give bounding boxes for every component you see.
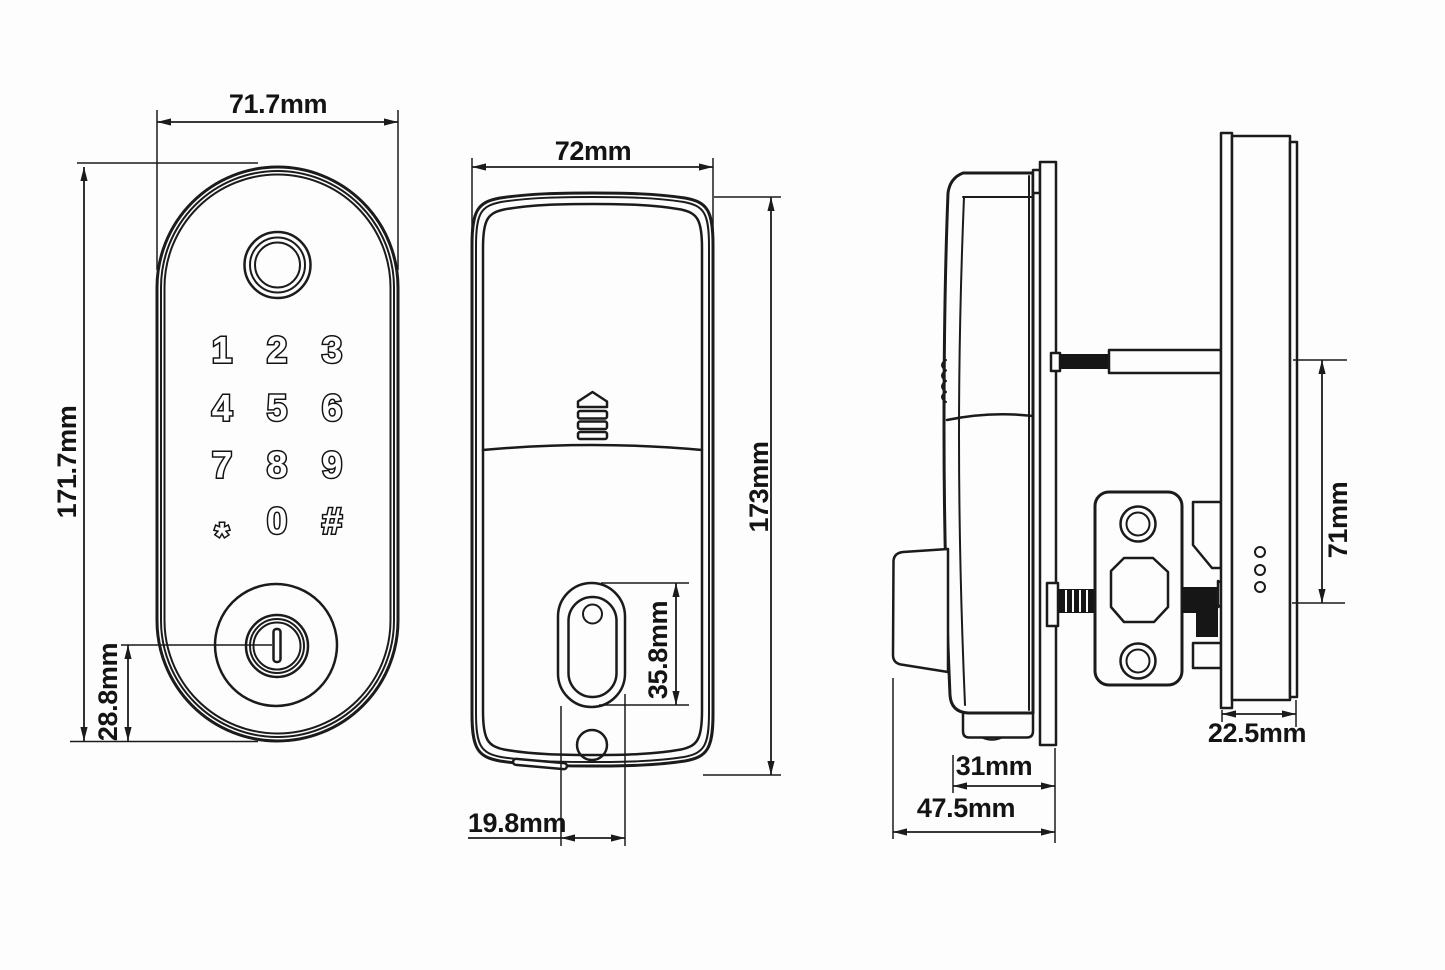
back-view: 72mm 173mm 35.8mm 19.8mm [468, 136, 781, 846]
key-6[interactable]: 6 [322, 388, 343, 429]
key-4[interactable]: 4 [212, 388, 233, 429]
dim-spindle-to-screw: 71mm [1292, 360, 1353, 603]
technical-drawing: 1 2 3 4 5 6 7 8 9 * 0 # 71.7mm [0, 0, 1445, 970]
key-9[interactable]: 9 [322, 445, 343, 486]
key-5[interactable]: 5 [267, 388, 288, 429]
front-view: 1 2 3 4 5 6 7 8 9 * 0 # 71.7mm [52, 89, 398, 742]
interior-plate [1221, 133, 1232, 708]
key-2[interactable]: 2 [267, 330, 288, 371]
interior-depth-label: 22.5mm [1208, 718, 1306, 748]
body-depth-label: 31mm [956, 751, 1032, 781]
exterior-foot [963, 713, 1033, 738]
spindle-sleeve [1109, 350, 1221, 373]
spindle-assembly [1051, 350, 1221, 373]
keypad: 1 2 3 4 5 6 7 8 9 * 0 # [212, 330, 343, 557]
keyway-slot [274, 629, 281, 662]
dim-oval-width: 19.8mm [468, 694, 625, 846]
key-0[interactable]: 0 [267, 501, 288, 542]
keyhole-offset-label: 28.8mm [93, 643, 123, 741]
interior-unit [1221, 133, 1297, 708]
fingerprint-sensor-icon [245, 232, 311, 298]
key-3[interactable]: 3 [322, 330, 343, 371]
key-8[interactable]: 8 [267, 445, 288, 486]
spindle-to-screw-label: 71mm [1323, 482, 1353, 558]
dim-back-height: 173mm [703, 197, 781, 775]
total-depth-label: 47.5mm [917, 793, 1015, 823]
exterior-body [944, 173, 1033, 713]
bottom-slot [513, 759, 567, 770]
front-height-label: 171.7mm [52, 406, 82, 519]
dim-back-width: 72mm [472, 136, 713, 242]
key-7[interactable]: 7 [212, 445, 233, 486]
spindle-bar [1059, 354, 1109, 369]
back-height-label: 173mm [744, 441, 774, 532]
exterior-plate [1040, 162, 1056, 745]
key-hash[interactable]: # [322, 501, 343, 542]
exterior-unit [893, 162, 1056, 745]
oval-width-label: 19.8mm [468, 808, 566, 838]
drawing-canvas: 1 2 3 4 5 6 7 8 9 * 0 # 71.7mm [0, 0, 1445, 970]
dim-keyhole-offset: 28.8mm [93, 643, 272, 741]
dim-body-depth: 31mm [953, 751, 1055, 793]
back-width-label: 72mm [555, 136, 631, 166]
deadbolt-mount-oval [558, 583, 625, 707]
battery-release-icon [578, 392, 607, 439]
battery-cover-seam [483, 445, 702, 450]
key-star[interactable]: * [215, 516, 230, 557]
key-cylinder-knob [893, 549, 948, 672]
interior-cover [1290, 142, 1297, 697]
fixing-bolt [1047, 583, 1096, 626]
oval-height-label: 35.8mm [643, 601, 673, 699]
mounting-plate [1095, 492, 1182, 685]
side-view: 31mm 47.5mm 22.5mm 71mm [893, 133, 1353, 843]
front-width-label: 71.7mm [229, 89, 327, 119]
interior-body [1232, 136, 1290, 700]
key-1[interactable]: 1 [212, 330, 233, 371]
